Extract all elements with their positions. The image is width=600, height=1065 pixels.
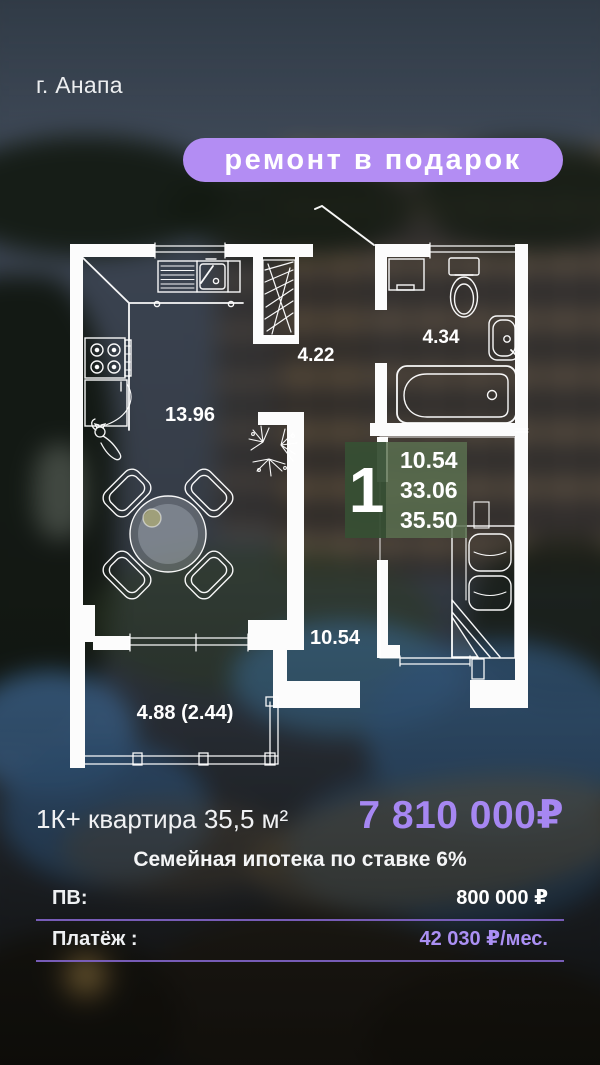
entry-leader-line [315, 206, 374, 245]
washbasin-icon [489, 316, 519, 360]
monthly-payment-label: Платёж : [52, 928, 138, 951]
total-area-value: 35.50 [400, 505, 467, 535]
down-payment-value: 800 000 ₽ [456, 885, 548, 910]
bathtub-icon [397, 366, 516, 423]
utility-closet [389, 259, 424, 290]
unit-info-card: 1 10.54 33.06 35.50 [345, 442, 467, 538]
toilet-icon [449, 258, 479, 317]
price: 7 810 000₽ [358, 793, 564, 838]
dining-table [99, 465, 236, 602]
drainer-hatch [161, 266, 194, 288]
label-bedroom-area: 10.54 [310, 627, 361, 649]
living-area-value: 10.54 [400, 445, 467, 475]
label-balcony-area: 4.88 (2.44) [137, 702, 234, 724]
kitchen-counter [83, 258, 243, 430]
label-bathroom-area: 4.34 [423, 327, 460, 348]
nightstand-icon [474, 502, 489, 528]
label-hallway-area: 4.22 [298, 345, 335, 366]
table-row: Платёж : 42 030 ₽/мес. [36, 921, 564, 962]
real-estate-story-poster: г. Анапа ремонт в подарок [0, 0, 600, 1065]
bed-icon [452, 526, 515, 658]
monthly-payment-value: 42 030 ₽/мес. [419, 926, 548, 951]
apartment-title: 1К+ квартира 35,5 м² [36, 804, 288, 835]
stove-icon [85, 338, 131, 378]
mortgage-note: Семейная ипотека по ставке 6% [0, 848, 600, 872]
rooms-count: 1 [345, 442, 386, 538]
kitchen-sink-icon [200, 259, 225, 289]
windows [130, 243, 528, 679]
wardrobe-hatched [263, 260, 295, 337]
payment-table: ПВ: 800 000 ₽ Платёж : 42 030 ₽/мес. [36, 880, 564, 962]
fridge-icon [85, 380, 131, 426]
label-kitchen-living-area: 13.96 [165, 404, 215, 426]
table-row: ПВ: 800 000 ₽ [36, 880, 564, 921]
down-payment-label: ПВ: [52, 887, 87, 910]
area-without-balcony-value: 33.06 [400, 475, 467, 505]
